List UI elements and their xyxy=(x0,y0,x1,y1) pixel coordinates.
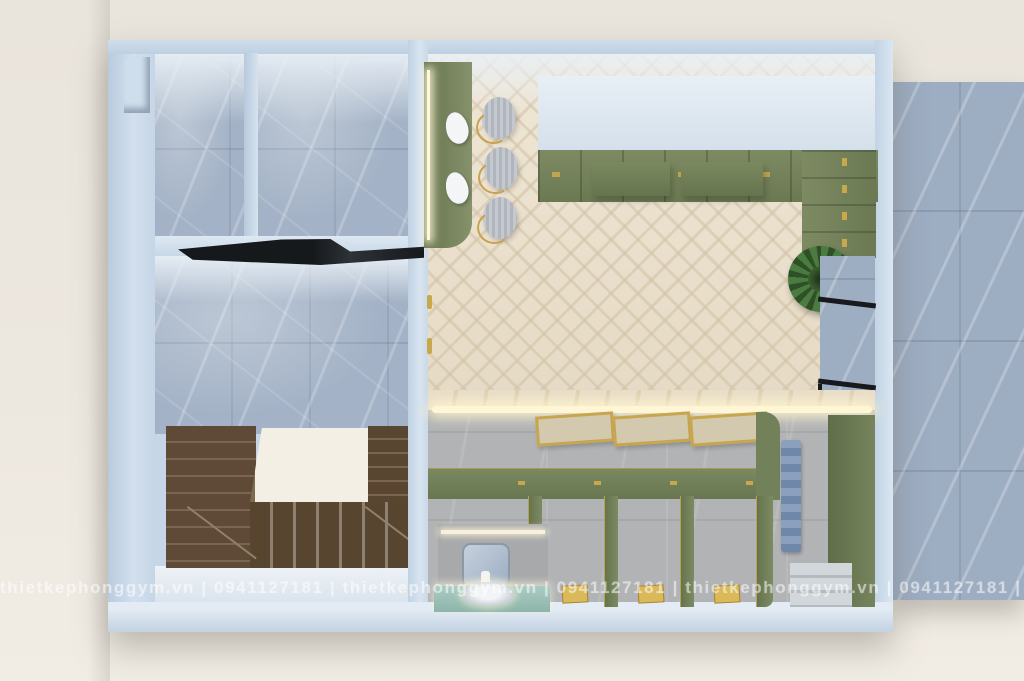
locker-handles-right-run xyxy=(842,158,847,254)
wall-left xyxy=(108,40,155,632)
watermark-text: thietkephonggym.vn | 0941127181 | thietk… xyxy=(0,576,1024,600)
vanity-shelf-light xyxy=(441,530,545,534)
wall-room-divider-small xyxy=(244,53,258,240)
room-top-left-wall-fade xyxy=(153,53,244,123)
bench-1 xyxy=(592,162,670,196)
locker-front-right-run xyxy=(802,150,876,258)
door-handle-lower xyxy=(427,338,432,354)
staircase-bottom-flight xyxy=(250,502,410,568)
wall-niche xyxy=(124,57,150,113)
console-led-strip xyxy=(427,70,430,240)
locker-top-surface xyxy=(538,76,875,150)
salon-chair-1 xyxy=(482,97,516,139)
towel-ladder xyxy=(781,440,801,552)
stall-corner-curve xyxy=(756,412,780,500)
lounge-floor xyxy=(155,256,410,434)
stall-top-rail xyxy=(428,468,778,499)
salon-chair-2 xyxy=(484,147,518,189)
terrace-marble-floor xyxy=(893,82,1024,600)
mirror-console xyxy=(424,62,472,248)
salon-chair-3 xyxy=(483,197,517,239)
bench-2 xyxy=(681,162,763,196)
wood-wall-led-glow xyxy=(432,406,872,413)
room-top-center-wall-fade xyxy=(258,53,410,123)
wall-top xyxy=(108,40,893,54)
staircase-void xyxy=(250,428,368,502)
wall-right xyxy=(875,40,893,602)
door-handle-upper xyxy=(427,295,432,309)
floor-plan-render: thietkephonggym.vn | 0941127181 | thietk… xyxy=(0,0,1024,681)
room-top-left-floor xyxy=(153,53,244,240)
shower-mirror-2 xyxy=(612,411,692,446)
room-top-center-floor xyxy=(258,53,410,240)
stall-rail-gold-hinges xyxy=(518,481,768,485)
staircase-right-flight xyxy=(368,426,410,504)
shower-mirror-1 xyxy=(535,411,615,446)
